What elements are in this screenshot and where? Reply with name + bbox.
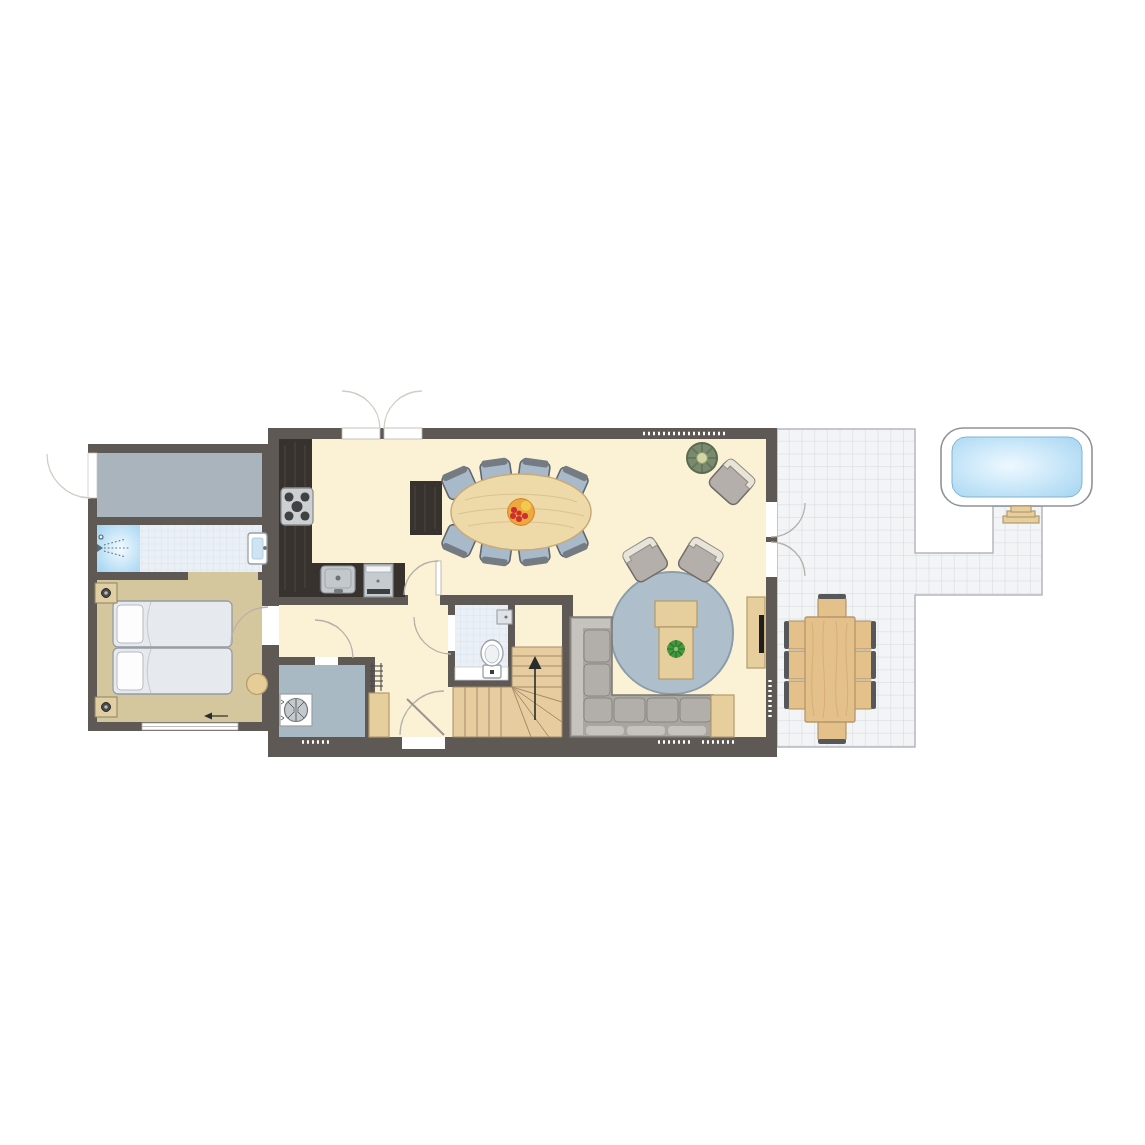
bathroom-bedroom-opening bbox=[188, 572, 258, 580]
hot-tub bbox=[941, 428, 1092, 523]
potted-plant-icon bbox=[687, 443, 717, 473]
table-plant-icon bbox=[667, 640, 685, 658]
terrace-chair bbox=[818, 720, 846, 744]
back-door-opening bbox=[402, 737, 445, 749]
bathroom-washbasin bbox=[248, 533, 267, 564]
hot-tub-water bbox=[952, 437, 1082, 497]
french-door-leaf bbox=[384, 428, 422, 439]
sofa-side-table bbox=[711, 695, 734, 737]
stove-icon bbox=[281, 488, 313, 525]
floor-plan-canvas bbox=[0, 0, 1145, 1145]
hall-cabinet bbox=[369, 693, 389, 737]
french-door-leaf bbox=[342, 428, 380, 439]
french-door-swing bbox=[384, 391, 422, 429]
terrace-door-opening bbox=[766, 542, 777, 577]
bedroom-stool bbox=[247, 674, 268, 695]
storage-door-opening bbox=[88, 453, 97, 498]
coffee-table bbox=[655, 601, 697, 679]
terrace-table bbox=[805, 617, 855, 722]
tv-icon bbox=[759, 615, 764, 653]
floor-plan-page bbox=[0, 0, 1145, 1145]
bedroom-window bbox=[142, 723, 238, 730]
utility-door-opening bbox=[315, 657, 338, 665]
kitchen-door-leaf bbox=[436, 561, 441, 595]
main-house bbox=[231, 391, 805, 757]
terrace-chair bbox=[818, 594, 846, 618]
utility-room bbox=[280, 694, 312, 726]
kitchen-sink-icon bbox=[321, 566, 355, 593]
toilet-icon bbox=[481, 640, 503, 678]
tv-cabinet bbox=[747, 597, 765, 668]
nightstand bbox=[95, 697, 117, 717]
nightstand bbox=[95, 583, 117, 603]
single-bed bbox=[113, 648, 232, 694]
storage-door-swing bbox=[47, 454, 90, 498]
storage-room-floor bbox=[97, 453, 262, 517]
dining-set bbox=[440, 457, 591, 567]
single-bed bbox=[113, 601, 232, 647]
french-door-swing bbox=[342, 391, 380, 429]
fruit-bowl-icon bbox=[508, 499, 535, 526]
shower-floor bbox=[97, 525, 140, 572]
bedroom-wing bbox=[47, 444, 270, 731]
washing-machine-icon bbox=[280, 694, 312, 726]
terrace-door-opening bbox=[766, 502, 777, 537]
bedroom-door-opening bbox=[262, 606, 279, 645]
oven-icon bbox=[364, 564, 393, 597]
wc-door-opening bbox=[448, 615, 455, 651]
